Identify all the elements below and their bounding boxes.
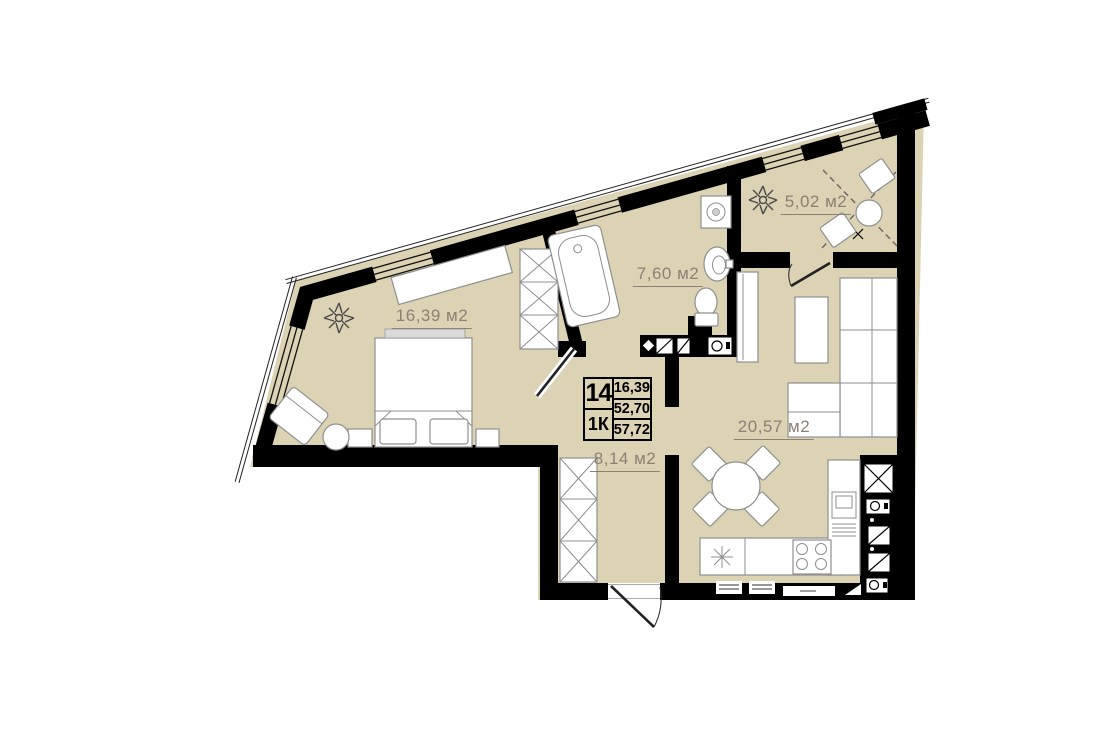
wardrobe-icon-hallway bbox=[560, 458, 597, 582]
room-label-bathroom: 7,60 м2 bbox=[633, 264, 703, 287]
floorplan-canvas: 16,39 м2 7,60 м2 5,02 м2 20,57 м2 8,14 м… bbox=[0, 0, 1105, 735]
room-label-balcony: 5,02 м2 bbox=[781, 192, 851, 215]
side-table-icon bbox=[323, 424, 349, 450]
kitchen-sink-icon bbox=[711, 546, 733, 568]
room-label-living: 20,57 м2 bbox=[734, 417, 814, 440]
unit-area-main: 52,70 bbox=[614, 400, 650, 421]
coffee-table-icon bbox=[795, 297, 828, 363]
unit-number: 14 bbox=[585, 379, 612, 410]
dining-table-icon bbox=[712, 462, 760, 510]
wardrobe-icon-bedroom bbox=[520, 249, 558, 349]
unit-area-total: 57,72 bbox=[614, 420, 650, 439]
room-label-hallway: 8,14 м2 bbox=[590, 449, 660, 472]
washing-machine-icon bbox=[701, 196, 731, 228]
bed-icon bbox=[375, 329, 472, 447]
wardrobe-icon-living bbox=[737, 272, 758, 362]
unit-type: 1К bbox=[585, 410, 612, 439]
toilet-icon bbox=[695, 288, 718, 326]
unit-area-living: 16,39 bbox=[614, 379, 650, 400]
vent-shaft-icons-bathroom bbox=[642, 337, 732, 355]
balcony-table-icon bbox=[856, 200, 882, 226]
room-label-bedroom: 16,39 м2 bbox=[392, 306, 472, 329]
entrance-door bbox=[608, 583, 661, 627]
stove-icon bbox=[793, 540, 831, 574]
unit-info-box: 14 1К 16,39 52,70 57,72 bbox=[583, 377, 652, 441]
floorplan-drawing bbox=[0, 0, 1105, 735]
